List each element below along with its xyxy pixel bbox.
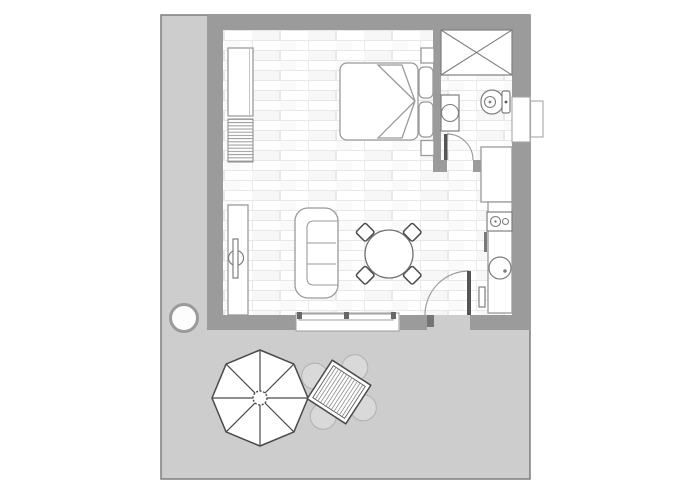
cabinet-handle [479, 287, 485, 307]
kitchen-faucet [503, 269, 507, 273]
oven-handle [484, 232, 487, 252]
pillow-bottom [419, 102, 433, 137]
parasol [212, 350, 308, 446]
wall-bottom-mid [400, 315, 427, 330]
living-window [296, 312, 399, 331]
radiator [228, 119, 253, 162]
mattress [340, 63, 418, 140]
wall-top [207, 15, 530, 30]
toilet-button [505, 101, 508, 104]
stove-burner-dot [494, 220, 496, 222]
bathroom-window [512, 97, 543, 142]
window-mullion [297, 312, 302, 319]
bedside-shelf-top [421, 48, 434, 63]
wall-bathroom-stub-left [433, 160, 447, 172]
vanity [441, 95, 459, 131]
pillow-top [419, 67, 433, 98]
entry-door-jamb [427, 315, 434, 327]
sofa [295, 208, 338, 298]
window-mullion [344, 312, 349, 319]
bathroom-window-frame [512, 97, 530, 142]
plant-pot [171, 305, 198, 332]
parasol-pole [253, 391, 267, 405]
floor-plan-page [0, 0, 700, 500]
tv-unit [228, 205, 248, 315]
floor-plan-canvas [0, 0, 700, 500]
wall-bottom-right [470, 315, 530, 330]
bedside-shelf-bottom [421, 141, 434, 156]
round-dining-table [365, 230, 413, 278]
wall-left [207, 15, 223, 330]
kitchen-tall-unit [481, 147, 512, 202]
dining-set [356, 223, 422, 285]
wall-bottom-left [207, 315, 296, 330]
entry-door-leaf [467, 271, 471, 315]
toilet [481, 90, 510, 114]
bathroom-door-leaf [444, 134, 448, 160]
toilet-drain [489, 101, 492, 104]
wall-right-upper [512, 15, 530, 97]
washbasin [441, 95, 459, 131]
bathroom-window-ledge [531, 101, 544, 137]
window-mullion [391, 312, 396, 319]
shower [441, 30, 512, 75]
wall-bathroom-stub-right [473, 160, 481, 172]
tv-screen [233, 239, 238, 278]
wall-right-lower [512, 142, 530, 330]
kitchen-sink [489, 257, 511, 279]
